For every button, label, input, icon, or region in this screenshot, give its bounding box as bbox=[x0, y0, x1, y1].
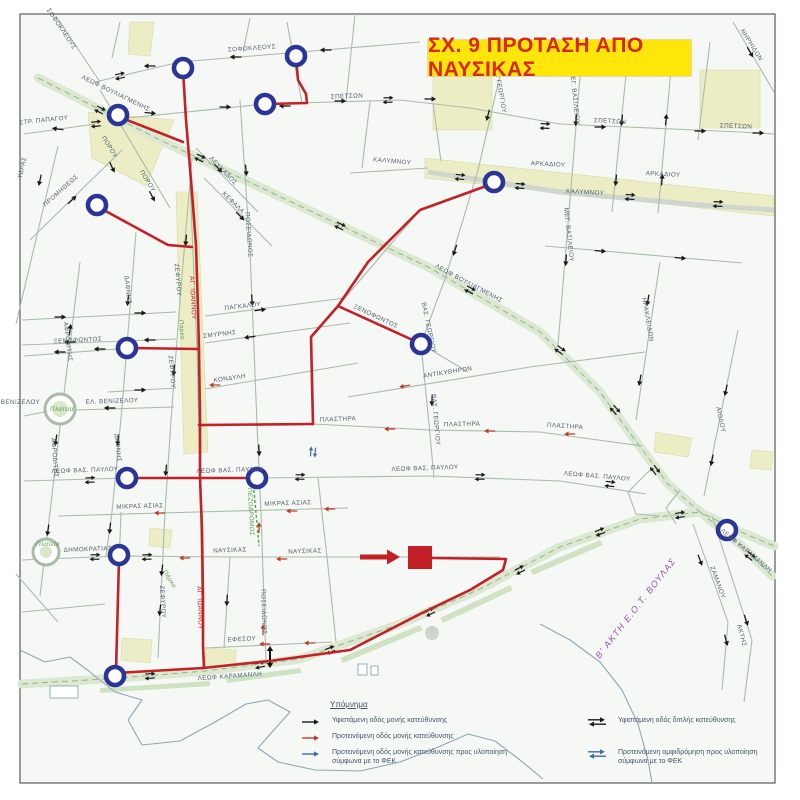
legend-arrow bbox=[302, 735, 319, 740]
park-area bbox=[128, 22, 154, 56]
twoway-arrow-icon-shaft bbox=[606, 481, 612, 482]
twoway-arrow-icon-shaft bbox=[95, 126, 101, 127]
junction-node bbox=[110, 546, 128, 564]
oneway-arrow-icon-shaft bbox=[595, 251, 602, 252]
street-label: ΠΛΑΣΤΗΡΑ bbox=[444, 421, 481, 429]
legend-arrow-head bbox=[589, 722, 594, 727]
twoway-arrow-icon-shaft bbox=[458, 179, 464, 180]
park-label: Πλατεία bbox=[36, 541, 60, 548]
legend-item-label: Προτεινόμενη οδός μονής κατεύθυνσης bbox=[332, 733, 454, 742]
park-area bbox=[750, 450, 773, 470]
legend-item-label: Υφιστάμενη οδός μονής κατεύθυνσης bbox=[332, 717, 447, 726]
legend-arrow bbox=[588, 717, 605, 722]
park-area bbox=[149, 528, 172, 548]
junction-node bbox=[88, 196, 106, 214]
junction-node bbox=[109, 106, 127, 124]
oneway-black-arrow-icon bbox=[298, 717, 324, 727]
twoway-arrow-icon-shaft bbox=[91, 122, 97, 123]
legend-heading: Υπόμνημα bbox=[330, 701, 368, 710]
map-legend: Υπόμνημα Υφιστάμενη οδός μονής κατεύθυνσ… bbox=[288, 698, 774, 784]
beach-circle bbox=[425, 626, 439, 640]
oneway-blue-arrow-icon bbox=[298, 749, 324, 759]
junction-node bbox=[287, 47, 305, 65]
twoway-arrow-icon-shaft bbox=[679, 517, 685, 518]
junction-node bbox=[118, 469, 136, 487]
twoway-black-arrow-icon bbox=[584, 717, 610, 727]
oneway-red-glyph bbox=[298, 733, 324, 743]
twoway-arrow-icon-shaft bbox=[456, 174, 462, 175]
legend-arrow bbox=[589, 754, 606, 759]
oneway-arrow-icon-shaft bbox=[246, 165, 247, 172]
legend-item-proposed-oneway: Προτεινόμενη οδός μονής κατεύθυνσης bbox=[298, 733, 528, 743]
proposed-twoway-arrow-icon-shaft bbox=[315, 448, 316, 454]
legend-item-proposed-twoway-fek: Προτεινόμενη αμφιδρόμηση προς υλοποίηση … bbox=[584, 749, 769, 766]
legend-item-label: Υφιστάμενη οδός διπλής κατεύθυνσης bbox=[618, 717, 736, 726]
street-label: ΝΑΥΣΙΚΑΣ bbox=[213, 546, 247, 554]
oneway-arrow-icon-shaft bbox=[110, 523, 111, 530]
destination-square bbox=[408, 546, 432, 569]
junction-node bbox=[256, 95, 274, 113]
legend-arrow bbox=[589, 722, 606, 727]
legend-arrow-head bbox=[314, 719, 319, 724]
legend-arrow-head bbox=[600, 717, 605, 722]
legend-arrow-head bbox=[314, 751, 319, 756]
oneway-arrow-icon-shaft bbox=[166, 465, 167, 472]
pier bbox=[358, 664, 367, 675]
proposed-route-line bbox=[199, 424, 313, 425]
legend-item-label: Προτεινόμενη οδός μονής κατεύθυνσης προς… bbox=[332, 749, 538, 766]
street-label: Λ. ΒΕΝΙΖΕΛΟΥ bbox=[0, 399, 41, 406]
oneway-blue-glyph bbox=[298, 749, 324, 759]
plan-title: ΣΧ. 9 ΠΡΟΤΑΣΗ ΑΠΟ ΝΑΥΣΙΚΑΣ bbox=[428, 34, 691, 82]
oneway-red-arrow-icon bbox=[298, 733, 324, 743]
city-map-canvas: ΣΟΦΟΚΛΕΟΥΣΣΟΦΟΚΛΕΟΥΣΣΠΕΤΣΩΝΣΠΕΤΣΩΝΣΠΕΤΣΩ… bbox=[0, 0, 800, 800]
oneway-black-glyph bbox=[298, 717, 324, 727]
proposed-twoway-arrow-icon-shaft bbox=[310, 450, 311, 456]
oneway-arrow-icon-shaft bbox=[666, 119, 667, 126]
legend-arrow-head bbox=[314, 735, 319, 740]
oneway-arrow-icon-shaft bbox=[675, 258, 682, 259]
junction-node bbox=[174, 59, 192, 77]
street-label: ΣΠΕΤΣΩΝ bbox=[331, 92, 364, 100]
park-area bbox=[700, 70, 760, 128]
park-label: Πλατεία bbox=[50, 406, 74, 413]
twoway-arrow-icon-shaft bbox=[675, 513, 681, 514]
twoway-blue-arrow-icon bbox=[584, 749, 610, 759]
park-area bbox=[121, 638, 152, 663]
legend-arrow bbox=[302, 719, 319, 724]
street-label: ΠΛΑΣΤΗΡΑ bbox=[320, 415, 357, 423]
plan-title-banner: ΣΧ. 9 ΠΡΟΤΑΣΗ ΑΠΟ ΝΑΥΣΙΚΑΣ bbox=[428, 40, 691, 76]
legend-item-existing-oneway: Υφιστάμενη οδός μονής κατεύθυνσης bbox=[298, 717, 528, 727]
twoway-blue-glyph bbox=[584, 749, 610, 759]
pier bbox=[371, 666, 378, 675]
oneway-arrow-icon-shaft bbox=[616, 175, 617, 182]
oneway-arrow-icon-shaft bbox=[186, 235, 187, 242]
legend-item-existing-twoway: Υφιστάμενη οδός διπλής κατεύθυνσης bbox=[584, 717, 769, 727]
legend-arrow-head bbox=[589, 754, 594, 759]
junction-node bbox=[118, 339, 136, 357]
scanned-traffic-plan-map: ΣΟΦΟΚΛΕΟΥΣΣΟΦΟΚΛΕΟΥΣΣΠΕΤΣΩΝΣΠΕΤΣΩΝΣΠΕΤΣΩ… bbox=[0, 0, 800, 800]
twoway-black-glyph bbox=[584, 717, 610, 727]
legend-item-label: Προτεινόμενη αμφιδρόμηση προς υλοποίηση … bbox=[618, 749, 769, 766]
legend-arrow bbox=[302, 751, 319, 756]
proposed-route-line bbox=[131, 348, 198, 349]
pier bbox=[50, 686, 78, 698]
junction-node bbox=[485, 173, 503, 191]
oneway-arrow-icon-shaft bbox=[662, 179, 663, 186]
twoway-arrow-icon-shaft bbox=[608, 486, 614, 487]
legend-arrow-head bbox=[600, 749, 605, 754]
legend-item-proposed-oneway-fek: Προτεινόμενη οδός μονής κατεύθυνσης προς… bbox=[298, 749, 538, 766]
junction-node bbox=[106, 667, 124, 685]
legend-arrow bbox=[588, 749, 605, 754]
street-label: ΣΠΕΤΣΩΝ bbox=[720, 122, 753, 130]
street-label: ΝΑΥΣΙΚΑΣ bbox=[288, 547, 322, 555]
